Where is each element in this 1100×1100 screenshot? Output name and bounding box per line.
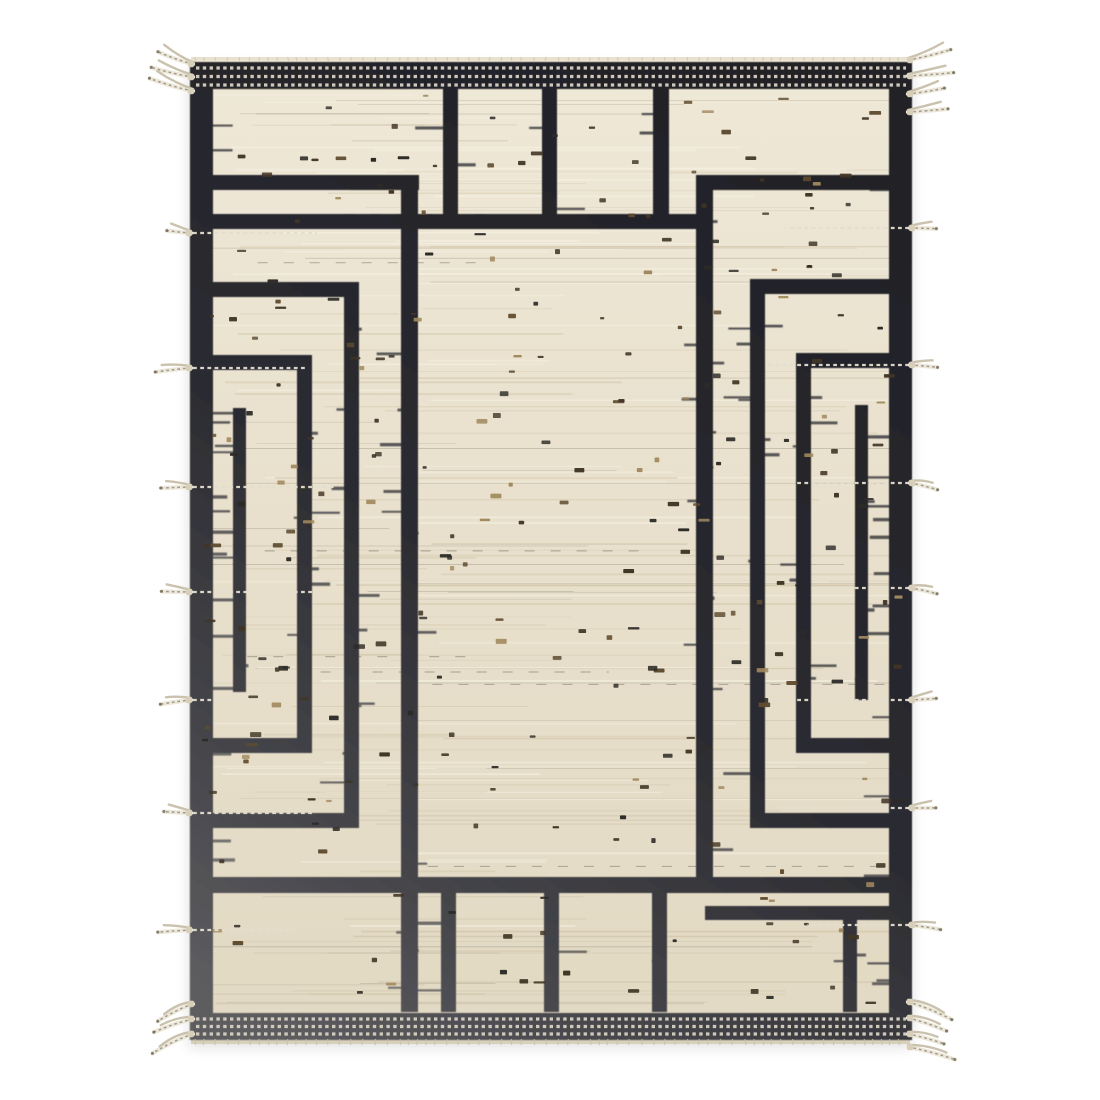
pattern-bar-left-arm-1 bbox=[212, 175, 419, 190]
pattern-bar-left-arm-2-bottom bbox=[212, 813, 358, 828]
pattern-bar-right-vertical-3 bbox=[796, 353, 811, 753]
pattern-bar-bottom-vertical-a bbox=[441, 893, 456, 1012]
pattern-bar-right-vertical-2 bbox=[750, 279, 765, 828]
pattern-bar-right-inner-line bbox=[855, 405, 868, 700]
pattern-bar-top-vertical-b bbox=[542, 88, 557, 221]
pattern-bar-top-vertical-c bbox=[653, 88, 669, 221]
pattern-bar-left-arm-2-top bbox=[212, 282, 358, 297]
pattern-bar-right-vertical-1 bbox=[696, 175, 713, 887]
pattern-bar-right-arm-2-top bbox=[750, 279, 889, 294]
pattern-bar-bottom-vertical-b bbox=[544, 893, 559, 1012]
right-border-band bbox=[889, 62, 912, 1040]
pattern-bar-left-vertical-3 bbox=[297, 355, 312, 753]
pattern-bar-right-arm-1 bbox=[696, 175, 889, 190]
pattern-bar-bottom-vertical-c bbox=[652, 893, 667, 1012]
pattern-bar-bottom-right-vertical bbox=[843, 916, 857, 1012]
left-border-band bbox=[190, 62, 213, 1040]
pattern-bar-left-vertical-2 bbox=[344, 282, 359, 828]
pattern-bar-left-inner-line bbox=[233, 408, 246, 692]
pattern-bar-left-arm-3-bottom bbox=[212, 738, 312, 753]
pattern-bar-bottom-right-bar bbox=[705, 906, 889, 920]
pattern-bar-right-arm-3-bottom bbox=[796, 738, 889, 753]
rug-artwork bbox=[0, 0, 1100, 1100]
rug-photo bbox=[0, 0, 1100, 1100]
pattern-bar-right-arm-2-bottom bbox=[750, 813, 889, 828]
pattern-bar-top-vertical-a bbox=[443, 88, 458, 221]
pattern-bar-center-horizontal bbox=[212, 214, 711, 229]
pattern-bar-bottom-horizontal bbox=[212, 877, 889, 893]
